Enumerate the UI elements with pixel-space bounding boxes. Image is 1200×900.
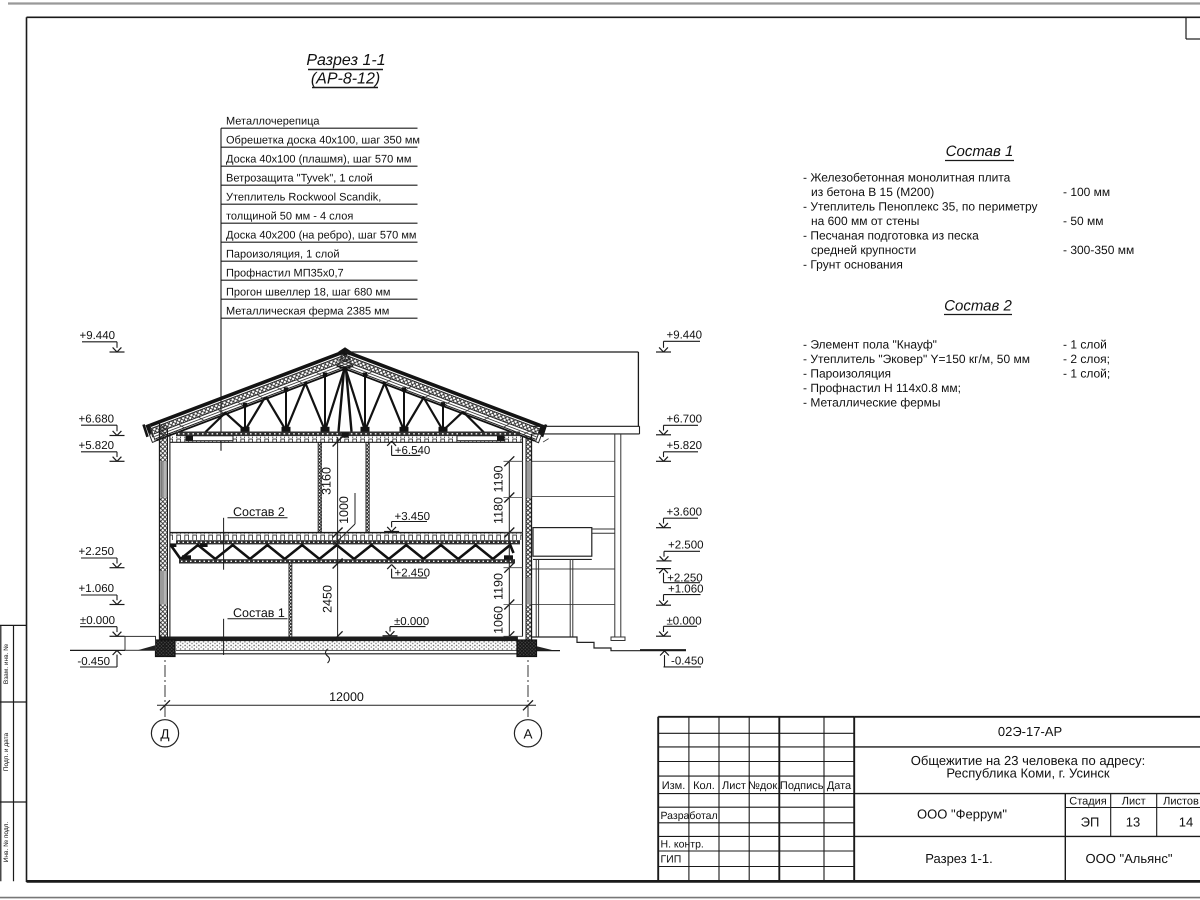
svg-text:Дата: Дата <box>827 780 852 792</box>
svg-text:Состав 1: Состав 1 <box>233 606 285 620</box>
svg-text:- Грунт основания: - Грунт основания <box>803 258 903 272</box>
svg-text:ООО "Феррум": ООО "Феррум" <box>917 807 1007 822</box>
svg-text:Металлочерепица: Металлочерепица <box>226 116 320 128</box>
svg-text:Лист: Лист <box>1122 795 1146 807</box>
svg-text:Пароизоляция, 1 слой: Пароизоляция, 1 слой <box>226 249 340 261</box>
svg-text:- Утеплитель Пеноплекс 35, по: - Утеплитель Пеноплекс 35, по периметру <box>803 200 1038 214</box>
svg-text:+9.440: +9.440 <box>667 330 703 342</box>
svg-text:Подпись: Подпись <box>780 780 824 792</box>
svg-text:(АР-8-12): (АР-8-12) <box>311 71 380 88</box>
svg-text:ЭП: ЭП <box>1081 815 1100 830</box>
svg-text:Лист: Лист <box>722 780 746 792</box>
svg-text:02Э-17-АР: 02Э-17-АР <box>998 724 1062 739</box>
svg-text:Утеплитель Rockwool Scandik,: Утеплитель Rockwool Scandik, <box>226 192 381 204</box>
svg-text:Листов: Листов <box>1163 795 1199 807</box>
svg-text:Разрез 1-1.: Разрез 1-1. <box>925 851 992 866</box>
svg-text:+6.680: +6.680 <box>79 413 115 425</box>
svg-text:А: А <box>523 726 532 741</box>
svg-text:Состав 2: Состав 2 <box>944 298 1012 315</box>
svg-text:Инв. № подл.: Инв. № подл. <box>3 822 10 863</box>
svg-text:+5.820: +5.820 <box>667 440 703 452</box>
svg-text:Д: Д <box>160 726 169 741</box>
svg-text:3160: 3160 <box>319 467 333 495</box>
svg-text:2450: 2450 <box>321 585 335 613</box>
svg-text:Доска 40х100 (плашмя), шаг 570: Доска 40х100 (плашмя), шаг 570 мм <box>226 154 411 166</box>
svg-text:+9.440: +9.440 <box>80 330 116 342</box>
svg-text:из бетона В 15 (М200): из бетона В 15 (М200) <box>811 185 934 199</box>
svg-text:Состав 2: Состав 2 <box>233 505 285 519</box>
svg-text:Подп. и дата: Подп. и дата <box>3 732 10 771</box>
svg-text:Металлическая ферма 2385 мм: Металлическая ферма 2385 мм <box>226 306 389 318</box>
svg-text:- 300-350 мм: - 300-350 мм <box>1063 243 1134 257</box>
svg-text:- Металлические фермы: - Металлические фермы <box>803 396 940 410</box>
svg-text:±0.000: ±0.000 <box>667 615 702 627</box>
svg-text:Республика Коми, г. Усинск: Республика Коми, г. Усинск <box>946 766 1109 781</box>
svg-text:Изм.: Изм. <box>662 780 686 792</box>
svg-text:±0.000: ±0.000 <box>80 615 115 627</box>
svg-text:- Железобетонная монолитная п: - Железобетонная монолитная плита <box>803 171 1011 185</box>
svg-text:на 600 мм от стены: на 600 мм от стены <box>811 214 919 228</box>
svg-text:13: 13 <box>1126 815 1140 830</box>
svg-text:1180: 1180 <box>491 497 505 524</box>
svg-text:ООО "Альянс": ООО "Альянс" <box>1086 851 1173 866</box>
svg-text:+6.700: +6.700 <box>667 413 703 425</box>
svg-text:- Песчаная подготовка из песка: - Песчаная подготовка из песка <box>803 229 979 243</box>
svg-text:+2.500: +2.500 <box>668 540 704 552</box>
svg-text:- Элемент пола "Кнауф": - Элемент пола "Кнауф" <box>803 338 937 352</box>
svg-text:12000: 12000 <box>329 690 364 704</box>
svg-text:Профнастил МП35х0,7: Профнастил МП35х0,7 <box>226 268 344 280</box>
svg-text:+3.600: +3.600 <box>667 506 703 518</box>
svg-text:1000: 1000 <box>337 496 351 524</box>
svg-text:ГИП: ГИП <box>661 854 682 866</box>
svg-text:Прогон швеллер 18, шаг 680 мм: Прогон швеллер 18, шаг 680 мм <box>226 287 390 299</box>
svg-text:Кол.: Кол. <box>693 780 715 792</box>
svg-text:1190: 1190 <box>491 573 505 600</box>
svg-text:+1.060: +1.060 <box>79 583 115 595</box>
svg-text:№док.: №док. <box>748 780 780 792</box>
svg-text:-0.450: -0.450 <box>77 656 110 668</box>
svg-text:- 50 мм: - 50 мм <box>1063 214 1104 228</box>
svg-text:толщиной 50 мм - 4 слоя: толщиной 50 мм - 4 слоя <box>226 211 353 223</box>
svg-text:14: 14 <box>1179 815 1193 830</box>
svg-text:Ветрозащита "Tyvek", 1 слой: Ветрозащита "Tyvek", 1 слой <box>226 173 373 185</box>
svg-text:Стадия: Стадия <box>1069 795 1107 807</box>
svg-text:- Пароизоляция: - Пароизоляция <box>803 367 891 381</box>
svg-text:- Утеплитель "Эковер" Y=150 кг: - Утеплитель "Эковер" Y=150 кг/м, 50 мм <box>803 352 1030 366</box>
svg-text:Взам. инв. №: Взам. инв. № <box>3 644 10 684</box>
svg-text:1060: 1060 <box>491 606 505 634</box>
svg-text:1190: 1190 <box>491 466 505 493</box>
svg-text:+2.250: +2.250 <box>79 546 115 558</box>
svg-text:Разрез 1-1: Разрез 1-1 <box>306 52 385 69</box>
svg-text:+5.820: +5.820 <box>79 440 115 452</box>
svg-text:- 1 слой: - 1 слой <box>1063 338 1107 352</box>
svg-text:- 100 мм: - 100 мм <box>1063 185 1110 199</box>
svg-text:Обрешетка доска 40х100, шаг 35: Обрешетка доска 40х100, шаг 350 мм <box>226 135 420 147</box>
svg-text:- 1 слой;: - 1 слой; <box>1063 367 1110 381</box>
svg-text:Доска 40х200 (на ребро), шаг 5: Доска 40х200 (на ребро), шаг 570 мм <box>226 230 416 242</box>
svg-text:- Профнастил Н 114х0.8 мм;: - Профнастил Н 114х0.8 мм; <box>803 381 961 395</box>
svg-text:Н. контр.: Н. контр. <box>661 839 704 851</box>
svg-text:-0.450: -0.450 <box>671 656 704 668</box>
svg-text:+1.060: +1.060 <box>668 584 704 596</box>
svg-text:- 2 слоя;: - 2 слоя; <box>1063 352 1110 366</box>
svg-text:Состав 1: Состав 1 <box>946 143 1014 160</box>
svg-text:Разработал: Разработал <box>661 810 718 822</box>
svg-text:средней крупности: средней крупности <box>811 243 916 257</box>
